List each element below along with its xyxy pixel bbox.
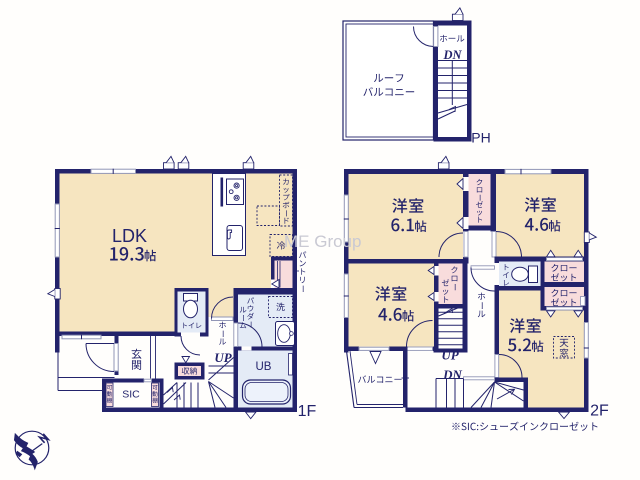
svg-text:UP: UP — [214, 350, 232, 365]
svg-text:2F: 2F — [590, 403, 609, 420]
svg-text:SIC: SIC — [122, 389, 140, 401]
svg-text:LDK: LDK — [112, 226, 147, 246]
svg-text:UP: UP — [441, 348, 459, 363]
svg-text:1F: 1F — [298, 403, 317, 420]
svg-text:PH: PH — [471, 130, 490, 146]
svg-text:UB: UB — [256, 361, 272, 373]
svg-text:ME Group: ME Group — [284, 232, 361, 251]
svg-text:DN: DN — [442, 367, 462, 382]
svg-text:DN: DN — [442, 48, 462, 62]
